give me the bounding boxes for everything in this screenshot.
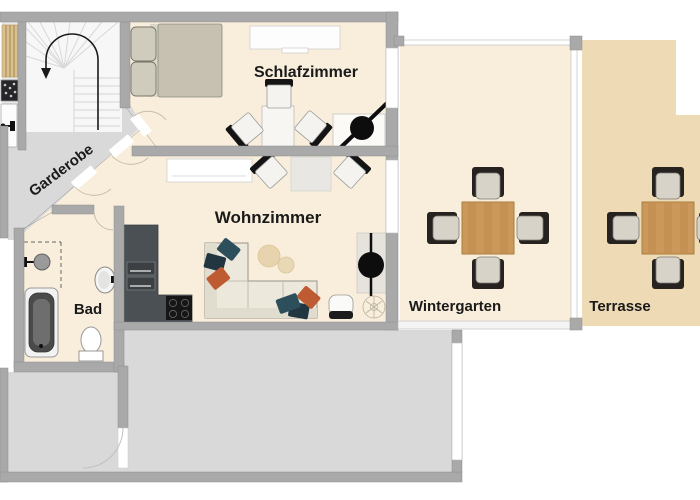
pillow <box>131 62 156 96</box>
side-table <box>291 157 331 191</box>
floorplan-canvas: Schlafzimmer Wohnzimmer Garderobe Bad Wi… <box>0 0 700 500</box>
wall-bedroom-living <box>132 146 398 156</box>
wall-bad-left <box>14 228 24 368</box>
wall-lower-left <box>0 368 8 482</box>
glass-post <box>394 36 404 46</box>
wall-living-bottom <box>114 322 398 330</box>
bathtub-icon <box>25 288 58 357</box>
table <box>262 106 294 148</box>
sideboard-icon <box>250 26 340 53</box>
wall-top <box>0 12 398 22</box>
glass-wall-right <box>571 40 577 328</box>
wall-bad-top <box>52 205 94 214</box>
toilet-icon <box>79 327 103 361</box>
grill-icon <box>1 80 18 101</box>
microwave <box>127 277 155 290</box>
wall-bottom <box>0 472 462 482</box>
room-label-wintergarten: Wintergarten <box>409 298 501 315</box>
room-label-bad: Bad <box>74 301 102 318</box>
glass-post <box>570 318 582 330</box>
window-icon <box>386 160 398 233</box>
glass-wall-bottom <box>398 321 574 329</box>
floorplan-page: Schlafzimmer Wohnzimmer Garderobe Bad Wi… <box>0 0 700 500</box>
window-icon <box>386 48 398 108</box>
window-icon <box>452 343 462 460</box>
laundry-basket-icon <box>329 295 353 319</box>
room-label-terrasse: Terrasse <box>589 298 650 315</box>
wall-closet <box>18 22 26 150</box>
glass-post <box>570 36 582 50</box>
room-label-schlafzimmer: Schlafzimmer <box>254 64 358 81</box>
pouf-icon <box>278 257 294 273</box>
wall-stairs-bedroom <box>120 22 130 108</box>
pillow <box>131 27 156 61</box>
wood-shelf-icon <box>2 25 20 77</box>
oven <box>127 262 155 275</box>
wall-lower-door-wall <box>118 366 128 428</box>
glass-wall-top <box>398 40 574 45</box>
wall-bad-kitchen <box>114 206 124 372</box>
wall-hall-left <box>0 126 8 238</box>
room-label-wohnzimmer: Wohnzimmer <box>215 208 322 227</box>
cooktop-icon <box>166 296 192 320</box>
sideboard-icon <box>167 159 252 182</box>
wall-bad-bottom <box>14 362 124 372</box>
fireplace-column-icon <box>357 233 387 296</box>
bed-icon <box>131 24 222 97</box>
floors <box>2 12 700 472</box>
pouf-icon <box>258 245 280 267</box>
